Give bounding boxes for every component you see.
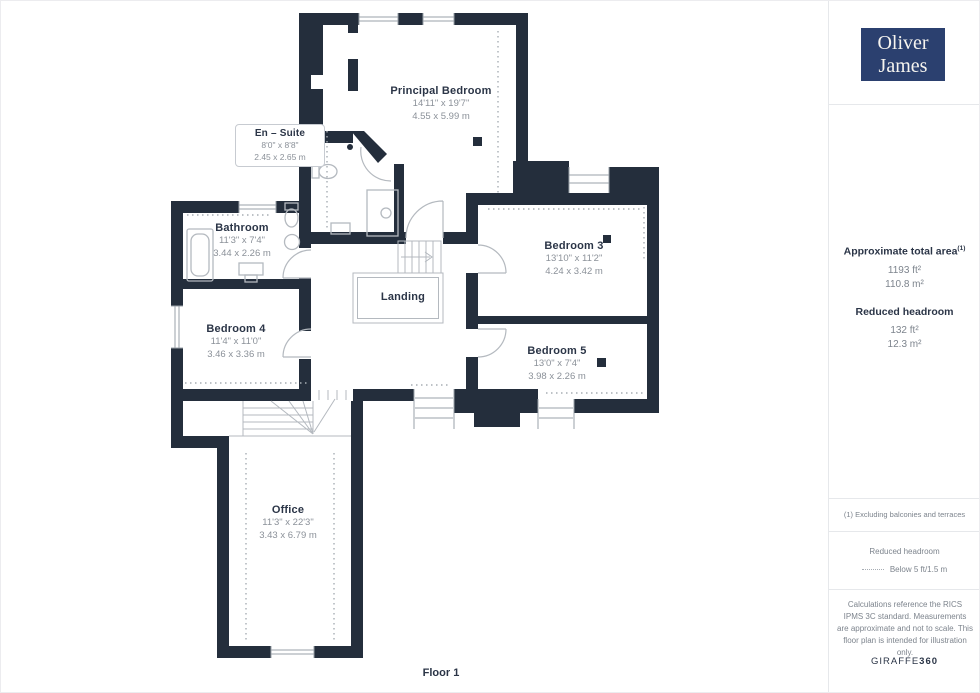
reduced-headroom-m: 12.3 m² (829, 338, 980, 353)
total-area-heading: Approximate total area(1) (829, 245, 980, 258)
reduced-headroom-ft: 132 ft² (829, 324, 980, 339)
fixtures-layer (187, 165, 398, 283)
reduced-headroom-heading: Reduced headroom (829, 306, 980, 318)
total-area-m: 110.8 m² (829, 278, 980, 293)
legend-row: Below 5 ft/1.5 m (829, 565, 980, 574)
agency-logo: Oliver James (861, 28, 945, 81)
floorplan-page: Principal Bedroom 14'11" x 19'7" 4.55 x … (0, 0, 980, 693)
sidebar-divider (829, 531, 980, 532)
sidebar-divider (829, 498, 980, 499)
windows-layer (171, 13, 609, 658)
shower (367, 190, 398, 236)
dotted-line-sample (862, 569, 884, 571)
basin (285, 235, 300, 250)
area-summary: Approximate total area(1) 1193 ft² 110.8… (829, 245, 980, 353)
disclaimer-text: Calculations reference the RICS IPMS 3C … (837, 599, 973, 659)
legend-title: Reduced headroom (829, 547, 980, 556)
floor-title: Floor 1 (361, 667, 521, 679)
giraffe360-watermark: GIRAFFE360 (829, 656, 980, 667)
walls-layer (171, 13, 659, 658)
total-area-ft: 1193 ft² (829, 264, 980, 279)
reduced-headroom-lines (185, 31, 644, 641)
legend-item: Below 5 ft/1.5 m (890, 565, 947, 574)
sidebar-divider (829, 104, 980, 105)
area-footnote: (1) Excluding balconies and terraces (829, 510, 980, 519)
toilet (239, 263, 263, 275)
room-label-en-suite: En – Suite 8'0" x 8'8" 2.45 x 2.65 m (235, 124, 325, 167)
sidebar-divider (829, 589, 980, 590)
stairs-layer (229, 241, 443, 436)
footnote-marker: (1) (957, 245, 965, 252)
stairwell-void (353, 273, 443, 323)
symbols-layer (347, 137, 611, 367)
